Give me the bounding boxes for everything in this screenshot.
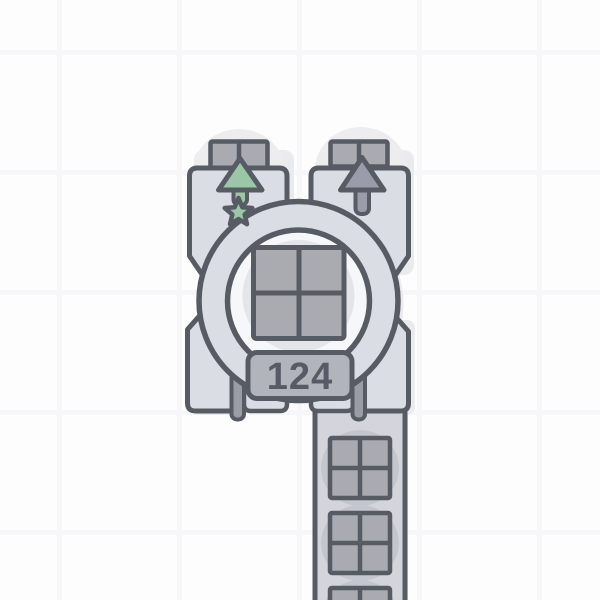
tower-window — [254, 248, 345, 339]
conveyor-block — [330, 438, 390, 498]
conveyor-track — [315, 406, 405, 600]
game-canvas: 124 — [0, 0, 600, 600]
tower-count-value: 124 — [267, 356, 333, 398]
game-viewport: 124 — [0, 0, 600, 600]
tower-count-badge: 124 — [248, 353, 352, 399]
conveyor-block — [330, 588, 390, 600]
conveyor-block — [330, 513, 390, 573]
